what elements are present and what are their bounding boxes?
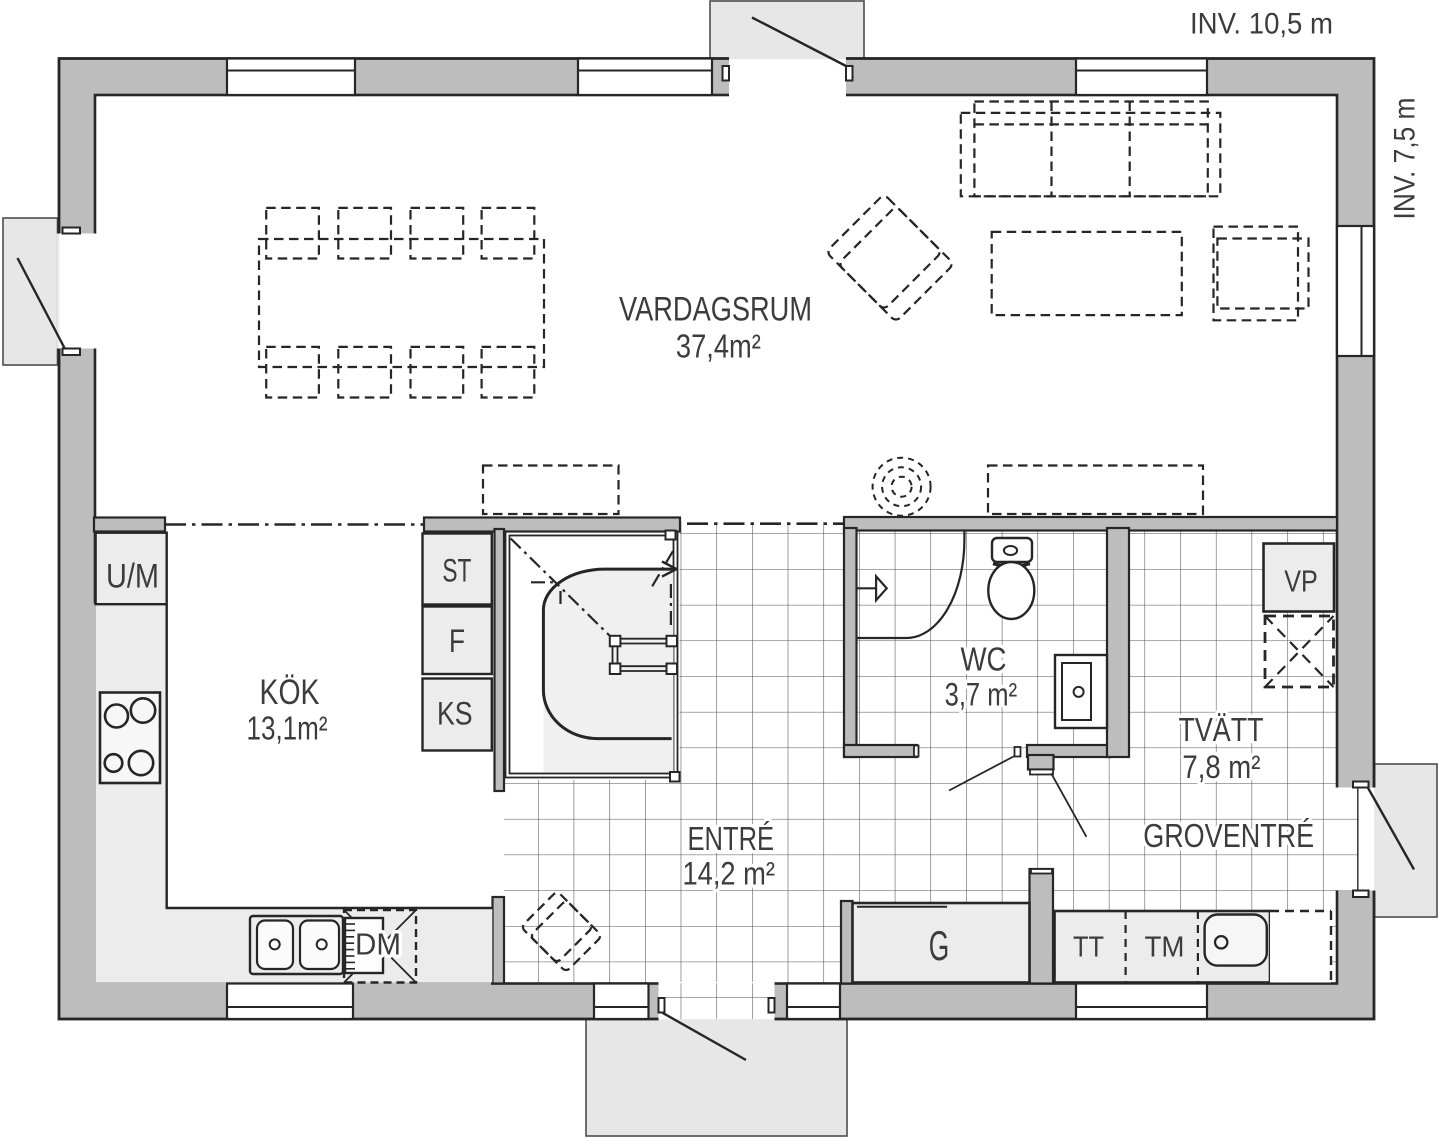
svg-text:INV. 10,5 m: INV. 10,5 m: [1190, 8, 1333, 41]
svg-text:F: F: [449, 623, 465, 659]
svg-text:GROVENTRÉ: GROVENTRÉ: [1143, 817, 1314, 854]
svg-text:VP: VP: [1284, 563, 1318, 598]
svg-text:KÖK: KÖK: [260, 673, 320, 712]
svg-text:U/M: U/M: [106, 558, 159, 596]
svg-text:DM: DM: [355, 927, 401, 962]
svg-text:ST: ST: [442, 553, 471, 589]
svg-text:INV. 7,5 m: INV. 7,5 m: [1389, 98, 1422, 220]
svg-text:G: G: [929, 922, 950, 969]
svg-text:VARDAGSRUM: VARDAGSRUM: [619, 291, 812, 329]
svg-text:TT: TT: [1073, 932, 1104, 964]
svg-text:TVÄTT: TVÄTT: [1179, 711, 1264, 748]
svg-text:TM: TM: [1145, 932, 1185, 964]
svg-text:14,2 m²: 14,2 m²: [683, 856, 776, 892]
svg-text:7,8 m²: 7,8 m²: [1182, 749, 1260, 785]
svg-text:37,4m²: 37,4m²: [676, 328, 761, 365]
svg-text:WC: WC: [961, 641, 1007, 678]
svg-text:3,7 m²: 3,7 m²: [945, 677, 1018, 713]
svg-text:13,1m²: 13,1m²: [247, 710, 328, 747]
svg-text:KS: KS: [437, 696, 473, 732]
svg-text:ENTRÉ: ENTRÉ: [688, 820, 775, 857]
